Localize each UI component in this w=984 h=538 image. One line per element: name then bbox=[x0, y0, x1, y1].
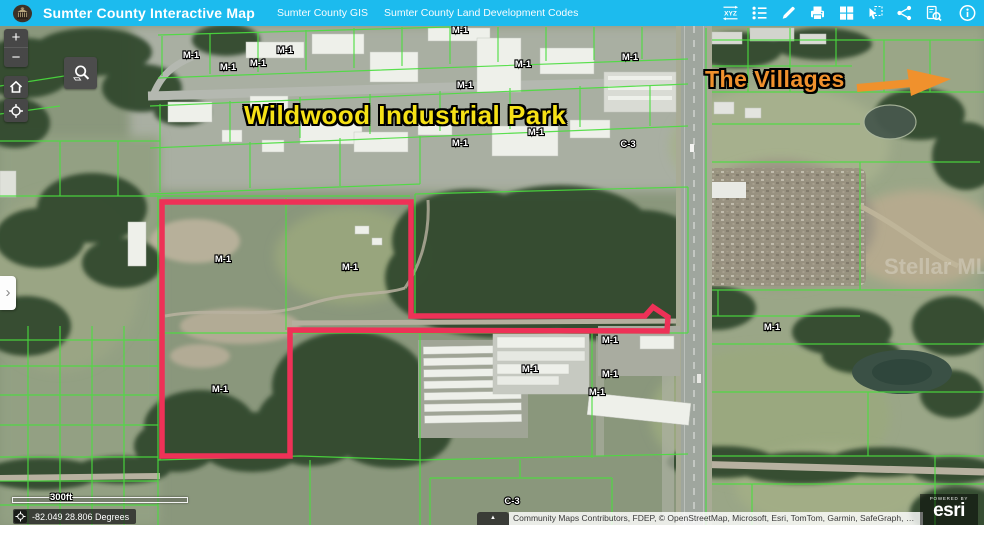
query-attributes-button[interactable] bbox=[919, 1, 947, 25]
link-land-development-codes[interactable]: Sumter County Land Development Codes bbox=[384, 7, 578, 19]
gps-locate-icon bbox=[8, 103, 24, 119]
zone-label: M-1 bbox=[250, 58, 267, 69]
app-window: Sumter County Interactive Map Sumter Cou… bbox=[0, 0, 984, 538]
scale-bar bbox=[12, 497, 188, 503]
villages-annotation: The Villages bbox=[705, 66, 845, 93]
app-title: Sumter County Interactive Map bbox=[43, 5, 255, 21]
photo-watermark: Stellar MLS bbox=[884, 254, 984, 280]
county-seal-logo bbox=[12, 4, 33, 23]
side-panel-expander[interactable]: › bbox=[0, 276, 16, 310]
basemap-grid-icon bbox=[837, 4, 856, 22]
zone-label: M-1 bbox=[277, 45, 294, 56]
zone-label: M-1 bbox=[220, 62, 237, 73]
zone-label: M-1 bbox=[452, 138, 469, 149]
zone-label: M-1 bbox=[342, 262, 359, 273]
xyz-coordinates-icon: XYZ bbox=[721, 4, 740, 22]
brand: Sumter County Interactive Map bbox=[12, 4, 255, 23]
page-bottom-strip bbox=[0, 525, 984, 538]
industrial-park-annotation: Wildwood Industrial Park bbox=[244, 100, 566, 131]
zone-label: M-1 bbox=[183, 50, 200, 61]
attribute-search-button[interactable] bbox=[64, 57, 97, 89]
basemap-gallery-button[interactable] bbox=[832, 1, 860, 25]
zone-label: M-1 bbox=[515, 59, 532, 70]
home-icon bbox=[9, 80, 23, 94]
draw-measure-button[interactable] bbox=[774, 1, 802, 25]
zone-label: M-1 bbox=[212, 384, 229, 395]
info-icon bbox=[958, 4, 977, 22]
zoom-out-button[interactable]: − bbox=[4, 48, 28, 67]
zone-label: M-1 bbox=[215, 254, 232, 265]
zone-label: M-1 bbox=[602, 335, 619, 346]
select-features-button[interactable] bbox=[861, 1, 889, 25]
zone-label: C-3 bbox=[620, 139, 635, 150]
zoom-control: + − bbox=[4, 29, 28, 67]
document-search-icon bbox=[924, 4, 943, 22]
app-header: Sumter County Interactive Map Sumter Cou… bbox=[0, 0, 984, 26]
map-attribution: Community Maps Contributors, FDEP, © Ope… bbox=[509, 512, 923, 525]
crosshair-icon bbox=[15, 511, 26, 522]
capture-coordinates-button[interactable] bbox=[14, 510, 27, 523]
print-button[interactable] bbox=[803, 1, 831, 25]
zone-label: C-3 bbox=[504, 496, 519, 507]
share-button[interactable] bbox=[890, 1, 918, 25]
legend-list-icon bbox=[750, 4, 769, 22]
pencil-icon bbox=[779, 4, 798, 22]
link-sumter-county-gis[interactable]: Sumter County GIS bbox=[277, 7, 368, 19]
zone-label: M-1 bbox=[764, 322, 781, 333]
svg-text:XYZ: XYZ bbox=[724, 11, 737, 18]
zone-label: M-1 bbox=[602, 369, 619, 380]
attribution-expander[interactable]: ▲ bbox=[477, 512, 509, 525]
zone-label: M-1 bbox=[622, 52, 639, 63]
esri-logo[interactable]: POWERED BY esri bbox=[920, 494, 978, 525]
legend-button[interactable] bbox=[745, 1, 773, 25]
zoom-in-button[interactable]: + bbox=[4, 29, 28, 48]
home-button[interactable] bbox=[4, 76, 28, 98]
printer-icon bbox=[808, 4, 827, 22]
zone-label: M-1 bbox=[589, 387, 606, 398]
select-cursor-icon bbox=[866, 4, 885, 22]
map-viewport[interactable]: M-1M-1M-1M-1M-1M-1M-1M-1M-1M-1C-3M-1M-1M… bbox=[0, 26, 984, 525]
zone-label: M-1 bbox=[452, 26, 469, 36]
toolbar: XYZ bbox=[716, 1, 981, 25]
scale-label: 300ft bbox=[50, 492, 72, 503]
powered-by-text: POWERED BY bbox=[920, 496, 978, 501]
header-links: Sumter County GIS Sumter County Land Dev… bbox=[277, 7, 578, 19]
zone-label: M-1 bbox=[522, 364, 539, 375]
zone-label: M-1 bbox=[457, 80, 474, 91]
xyz-coordinates-button[interactable]: XYZ bbox=[716, 1, 744, 25]
coordinate-widget: -82.049 28.806 Degrees bbox=[13, 509, 136, 524]
esri-wordmark: esri bbox=[920, 501, 978, 522]
coordinates-readout: -82.049 28.806 Degrees bbox=[32, 512, 129, 522]
locate-button[interactable] bbox=[4, 99, 28, 122]
info-button[interactable] bbox=[953, 1, 981, 25]
search-magnifier-icon bbox=[70, 62, 92, 84]
share-icon bbox=[895, 4, 914, 22]
